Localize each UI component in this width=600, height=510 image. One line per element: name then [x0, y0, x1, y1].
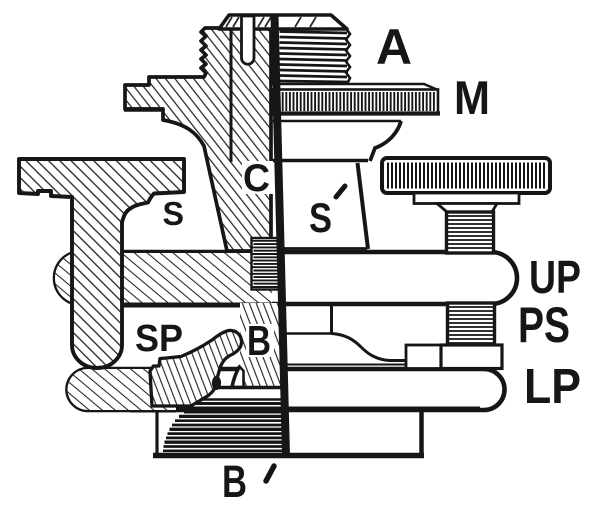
svg-text:S: S — [309, 194, 332, 241]
svg-text:UP: UP — [529, 251, 581, 303]
svg-text:B: B — [247, 317, 271, 364]
svg-text:S: S — [163, 195, 185, 232]
svg-text:B: B — [222, 456, 247, 507]
svg-text:A: A — [376, 19, 412, 75]
svg-text:SP: SP — [135, 318, 183, 360]
svg-text:LP: LP — [524, 360, 581, 414]
svg-text:C: C — [243, 157, 270, 200]
svg-text:PS: PS — [518, 297, 570, 353]
svg-text:M: M — [454, 71, 490, 124]
